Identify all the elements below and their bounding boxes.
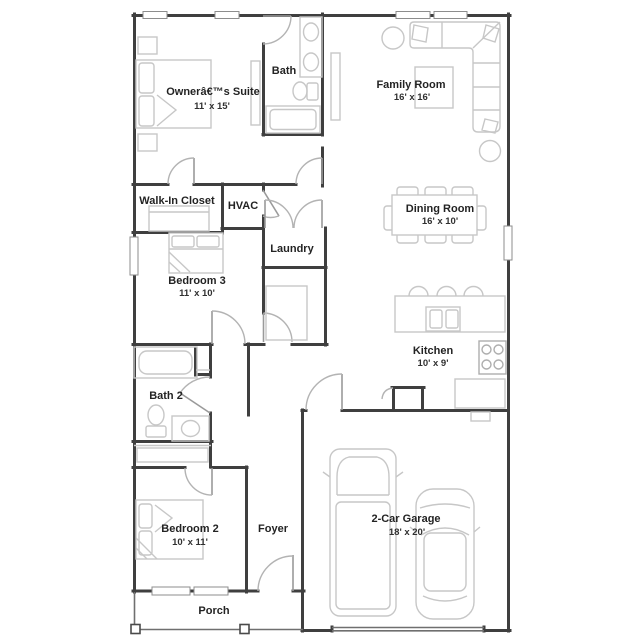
floor-plan-page: Ownerâ€™s Suite 11' x 15' Bath Family Ro… xyxy=(0,0,640,640)
room-dims-garage: 18' x 20' xyxy=(389,527,425,538)
water-heater-icon xyxy=(471,412,490,421)
room-label-laundry: Laundry xyxy=(270,243,314,255)
bedroom3-furniture xyxy=(169,233,223,273)
room-label-owners-suite: Ownerâ€™s Suite xyxy=(166,86,260,98)
vanity-icon xyxy=(300,17,322,77)
side-table-icon xyxy=(382,27,404,49)
dining-table-icon xyxy=(392,195,477,235)
room-label-family-room: Family Room xyxy=(376,79,445,91)
toilet-icon xyxy=(148,405,164,425)
room-dims-bedroom-3: 11' x 10' xyxy=(179,288,215,299)
toilet-icon xyxy=(293,82,307,100)
closet-shelf-icon xyxy=(149,206,209,231)
vanity-icon xyxy=(172,416,209,441)
window-icon xyxy=(130,237,138,275)
room-label-porch: Porch xyxy=(198,605,229,617)
room-label-garage: 2-Car Garage xyxy=(371,513,440,525)
room-label-bath: Bath xyxy=(272,65,297,77)
room-label-hvac: HVAC xyxy=(228,200,258,212)
counter-icon xyxy=(455,379,505,408)
closet-shelf-icon xyxy=(137,448,208,462)
window-icon xyxy=(143,12,167,19)
window-icon xyxy=(396,12,430,19)
room-label-bath-2: Bath 2 xyxy=(149,390,183,402)
kitchen-island-icon xyxy=(395,296,505,332)
room-dims-kitchen: 10' x 9' xyxy=(418,358,449,369)
side-table-icon xyxy=(480,141,501,162)
room-label-dining-room: Dining Room xyxy=(406,203,475,215)
dining-furniture xyxy=(384,187,486,243)
nightstand-icon xyxy=(138,134,157,151)
garage-door xyxy=(332,628,484,631)
bed-icon xyxy=(169,233,223,273)
truck-icon xyxy=(330,449,396,616)
room-label-bedroom-2: Bedroom 2 xyxy=(161,523,218,535)
window-icon xyxy=(152,587,190,595)
room-dims-owners-suite: 11' x 15' xyxy=(194,101,230,112)
nightstand-icon xyxy=(138,37,157,54)
window-icon xyxy=(504,226,512,260)
tv-console-icon xyxy=(331,53,340,120)
room-label-foyer: Foyer xyxy=(258,523,289,535)
room-dims-family-room: 16' x 16' xyxy=(394,92,430,103)
porch-post xyxy=(131,625,140,634)
bar-stool-icon xyxy=(409,287,483,297)
window-icon xyxy=(194,587,228,595)
room-dims-bedroom-2: 10' x 11' xyxy=(172,537,208,548)
room-label-bedroom-3: Bedroom 3 xyxy=(168,275,225,287)
floor-plan-canvas: Ownerâ€™s Suite 11' x 15' Bath Family Ro… xyxy=(0,0,640,640)
window-icon xyxy=(215,12,239,19)
room-dims-dining-room: 16' x 10' xyxy=(422,216,458,227)
room-label-kitchen: Kitchen xyxy=(413,345,454,357)
porch-post xyxy=(240,625,249,634)
room-label-walk-in-closet: Walk-In Closet xyxy=(139,195,215,207)
closet-shelf-icon xyxy=(266,286,307,340)
window-icon xyxy=(434,12,467,19)
room-labels: Ownerâ€™s Suite 11' x 15' Bath Family Ro… xyxy=(139,65,474,617)
